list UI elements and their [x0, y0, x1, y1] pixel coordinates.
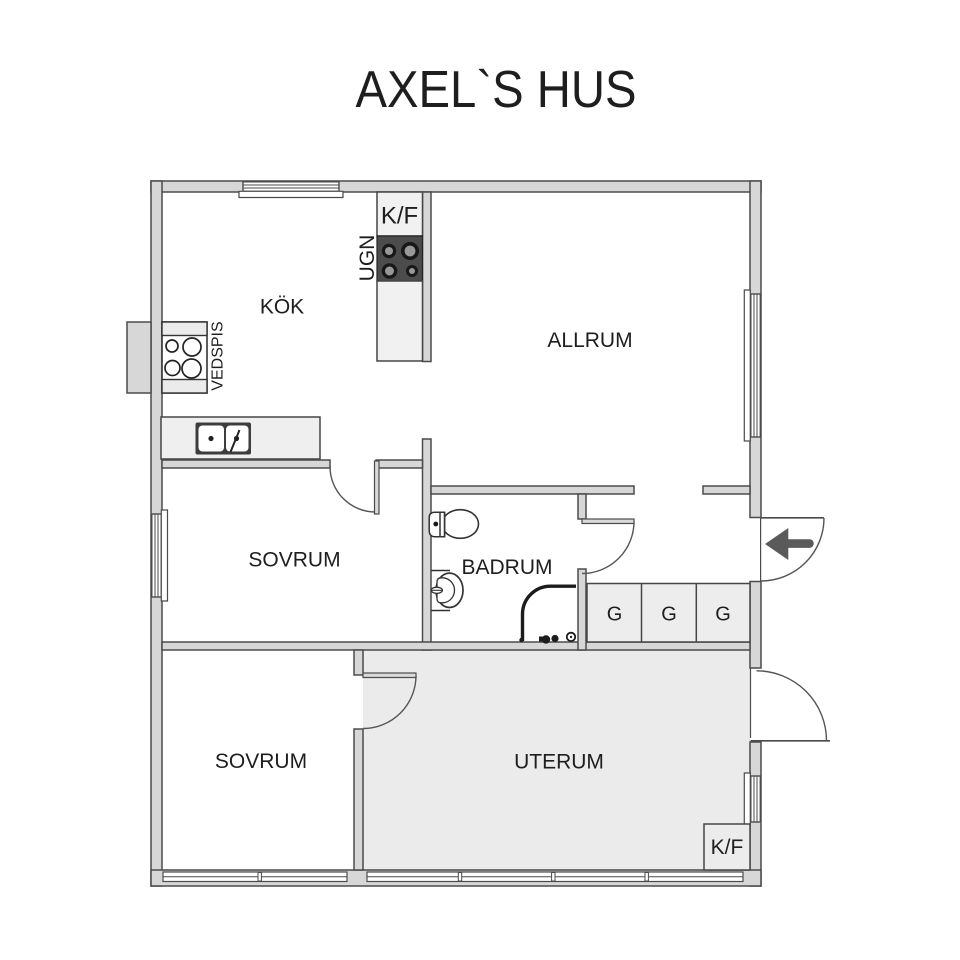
svg-text:G: G	[607, 604, 623, 626]
svg-text:K/F: K/F	[711, 836, 744, 859]
svg-text:BADRUM: BADRUM	[461, 556, 552, 579]
svg-text:SOVRUM: SOVRUM	[248, 549, 340, 572]
svg-text:ALLRUM: ALLRUM	[547, 329, 632, 352]
svg-text:VEDSPIS: VEDSPIS	[210, 321, 227, 390]
svg-text:G: G	[715, 604, 731, 626]
svg-text:AXEL`S HUS: AXEL`S HUS	[356, 61, 637, 119]
svg-text:SOVRUM: SOVRUM	[215, 750, 307, 773]
svg-text:KÖK: KÖK	[260, 296, 304, 319]
svg-text:G: G	[661, 604, 677, 626]
svg-text:UTERUM: UTERUM	[514, 751, 604, 774]
svg-text:UGN: UGN	[356, 235, 379, 282]
svg-text:K/F: K/F	[381, 203, 418, 230]
